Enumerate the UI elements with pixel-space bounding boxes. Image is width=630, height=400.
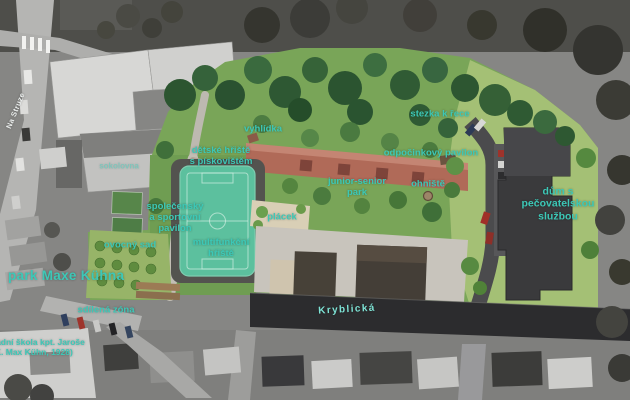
orchard <box>86 230 180 300</box>
site-plan-screenshot: { "colors": { "accent": "#3cc8b7", "stre… <box>0 0 630 400</box>
bottom-houses <box>0 328 630 400</box>
care-home-building <box>498 128 572 300</box>
fire-pit <box>424 192 433 201</box>
plaza-building-small <box>293 251 337 298</box>
aerial-map <box>0 0 630 400</box>
